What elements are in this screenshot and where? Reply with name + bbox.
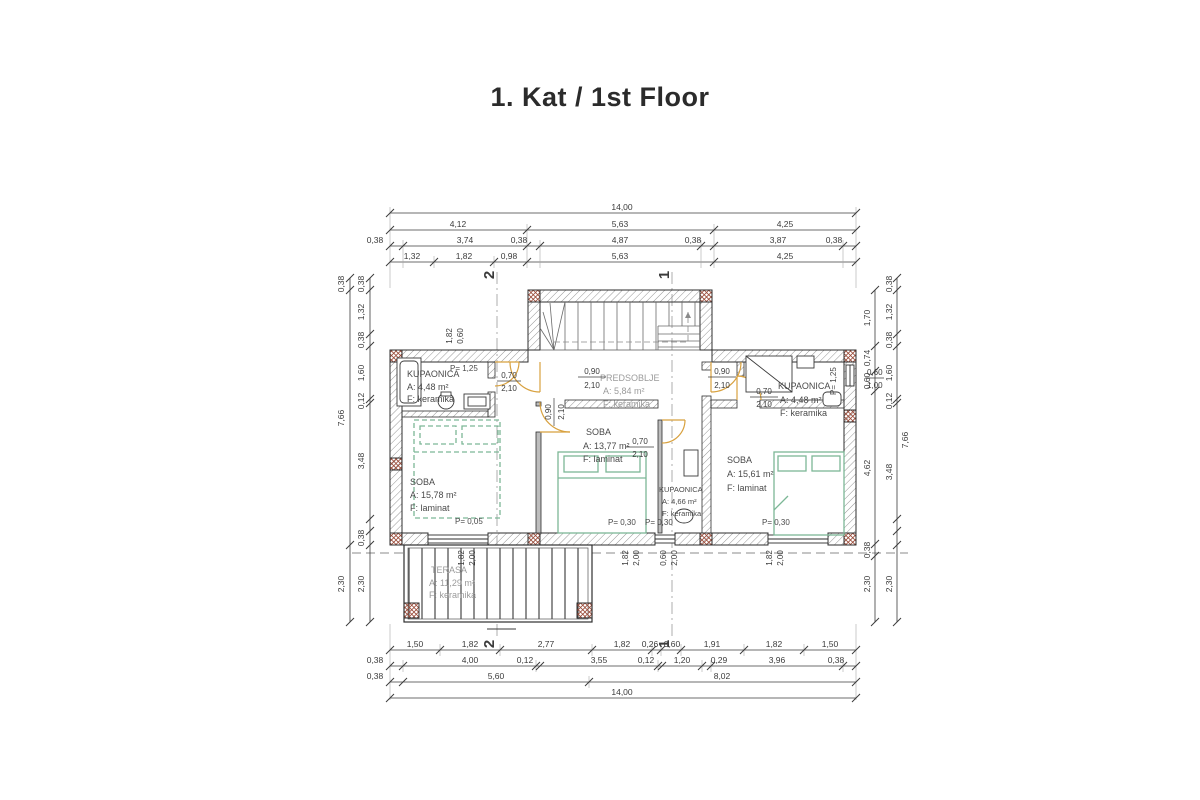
dim-value: 2,77 [538,639,555,649]
dim-value: 5,63 [612,251,629,261]
room-floor: F: keramika [662,509,702,518]
door-height: 2,10 [584,381,600,390]
room-floor: F: laminat [727,483,767,493]
room-area: A: 15,78 m² [410,490,457,500]
dim-value: 0,38 [685,235,702,245]
dim-value: 0,98 [501,251,518,261]
dim-value: 0,38 [862,541,872,558]
dim-value: 0,38 [367,655,384,665]
door-height: 2,10 [557,404,566,420]
dim-value: 4,25 [777,251,794,261]
dim-value: 0,38 [884,275,894,292]
window-height: 2,00 [776,550,785,566]
door-width: 0,90 [544,404,553,420]
dim-value: 3,87 [770,235,787,245]
door-width: 0,70 [501,371,517,380]
window-label-right-soba: 1,82 2,00 [765,550,785,566]
dim-value: 1,32 [884,303,894,320]
room-name: SOBA [410,477,435,487]
room-name: PREDSOBLJE [600,373,660,383]
dim-value: 0,38 [884,331,894,348]
room-floor: F: laminat [410,503,450,513]
dim-value: 0,38 [367,671,384,681]
window-width: 0,60 [659,550,668,566]
dim-value: 8,02 [714,671,731,681]
dim-value: 3,96 [769,655,786,665]
room-area: A: 13,77 m² [583,441,630,451]
dim-value: 1,70 [862,309,872,326]
opening-labels: 0,70 2,10 0,90 2,10 0,90 2,10 0,70 2,10 … [445,328,884,566]
dim-value: 0,38 [367,235,384,245]
room-name: SOBA [727,455,752,465]
dim-value: 0,29 [711,655,728,665]
dim-value: 1,50 [822,639,839,649]
dim-value: 0,12 [884,392,894,409]
door-height: 2,10 [756,400,772,409]
room-name: KUPAONICA [778,381,830,391]
window-width: 1,82 [457,550,466,566]
dim-value: 0,60 [862,372,872,389]
floor-plan-drawing: KUPAONICA A: 4,48 m² F: keramika P= 1,25… [0,0,1200,800]
room-area: A: 4,66 m² [662,497,697,506]
room-name: SOBA [586,427,611,437]
room-p-value: P= 1,25 [450,364,478,373]
witness-lines [390,207,856,700]
dimension-chain-bottom: 1,50 1,82 2,77 1,82 0,26 0,60 1,91 1,82 … [367,639,845,697]
dimension-chain-top: 14,00 4,12 5,63 4,25 0,38 3,74 0,38 4,87… [367,202,843,261]
section-marker-2-bottom: 2 [481,640,498,648]
door-width: 0,70 [632,437,648,446]
dim-value: 14,00 [611,202,633,212]
dimension-chain-right: 1,70 0,74 0,60 4,62 0,38 2,30 0,38 1,32 … [862,275,910,592]
dim-value: 1,60 [356,364,366,381]
toilet-icon-right [797,356,814,368]
room-floor: F: keramika [780,408,827,418]
dim-value: 1,32 [404,251,421,261]
dim-value: 1,91 [704,639,721,649]
dim-value: 3,48 [884,463,894,480]
door-label-predsoblje-right: 0,90 2,10 [708,367,736,390]
window-label-mid-small: 0,60 2,00 [659,550,679,566]
dimension-chain-left: 0,38 7,66 2,30 0,38 1,32 0,38 1,60 0,12 … [336,275,366,592]
dim-value: 0,12 [517,655,534,665]
window-height: 2,00 [632,550,641,566]
dim-value: 1,82 [456,251,473,261]
stairs [540,302,700,350]
dim-value: 7,66 [900,431,910,448]
window-width: 1,82 [621,550,630,566]
dim-value: 1,82 [462,639,479,649]
dim-value: 0,12 [638,655,655,665]
dim-value: 7,66 [336,409,346,426]
dim-value: 1,82 [766,639,783,649]
door-width: 0,90 [584,367,600,376]
section-marker-1-top: 1 [656,271,673,279]
section-marker-1-bottom: 1 [656,640,673,648]
dim-value: 2,30 [356,575,366,592]
terrace-post-right [577,603,592,618]
window-height: 0,60 [456,328,465,344]
dim-value: 14,00 [611,687,633,697]
room-area: A: 15,61 m² [727,469,774,479]
dim-value: 0,74 [862,349,872,366]
dim-value: 4,00 [462,655,479,665]
room-p-value: P= 0,30 [762,518,790,527]
dim-value: 5,63 [612,219,629,229]
door-width: 0,90 [714,367,730,376]
stair-direction-arrow [685,312,691,318]
dim-value: 2,30 [336,575,346,592]
dim-value: 1,20 [674,655,691,665]
page-title: 1. Kat / 1st Floor [0,82,1200,113]
window-label-mid-soba: 1,82 2,00 [621,550,641,566]
dim-value: 3,74 [457,235,474,245]
dim-value: 0,38 [511,235,528,245]
room-floor: F: keramika [407,394,454,404]
room-area: A: 5,84 m² [603,386,645,396]
terrace-post-left [404,603,419,618]
dim-value: 4,25 [777,219,794,229]
sink-basin [468,397,486,406]
dim-value: 1,60 [884,364,894,381]
dim-value: 0,38 [828,655,845,665]
room-area: A: 4,48 m² [780,395,822,405]
room-floor: F: keramika [603,399,650,409]
room-label-soba-mid: SOBA A: 13,77 m² F: laminat P= 0,30 [583,427,636,527]
window-width: 1,82 [445,328,454,344]
room-floor: F: laminat [583,454,623,464]
window-height: 2,00 [670,550,679,566]
dim-value: 2,30 [862,575,872,592]
sink-icon-mid-bath [684,450,698,476]
dim-value: 2,30 [884,575,894,592]
dim-value: 0,38 [336,275,346,292]
door-height: 2,10 [632,450,648,459]
window-width: 1,82 [765,550,774,566]
dim-value: 1,82 [614,639,631,649]
window-height: 2,00 [468,550,477,566]
room-p-value: P= 0,30 [608,518,636,527]
room-label-soba-left: SOBA A: 15,78 m² F: laminat P= 0,05 [410,477,483,526]
dim-value: 4,12 [450,219,467,229]
dim-value: 1,50 [407,639,424,649]
room-area: A: 11,29 m² [429,578,475,588]
door-width: 0,70 [756,387,772,396]
dim-value: 4,62 [862,459,872,476]
dim-value: 4,87 [612,235,629,245]
room-name: KUPAONICA [659,485,703,494]
dim-value: 0,12 [356,392,366,409]
floor-plan-page: 1. Kat / 1st Floor [0,0,1200,800]
dim-value: 1,32 [356,303,366,320]
door-height: 2,10 [714,381,730,390]
dim-value: 0,38 [356,275,366,292]
room-p-value: P= 0,30 [645,518,673,527]
dim-value: 0,38 [826,235,843,245]
room-floor: F: keramika [429,590,476,600]
door-arc-mid-bath [662,420,685,443]
room-label-kupaonica-mid: KUPAONICA A: 4,66 m² F: keramika P= 0,30 [645,485,703,527]
section-marker-2-top: 2 [481,271,498,279]
dim-value: 5,60 [488,671,505,681]
window-label-stair-left: 1,82 0,60 [445,328,465,344]
room-area: A: 4,48 m² [407,382,449,392]
dim-value: 3,48 [356,452,366,469]
room-p-value: P= 0,05 [455,517,483,526]
door-height: 2,10 [501,384,517,393]
dim-value: 0,38 [356,331,366,348]
dim-value: 3,55 [591,655,608,665]
room-label-soba-right: SOBA A: 15,61 m² F: laminat P= 0,30 [727,455,790,527]
dim-value: 0,38 [356,529,366,546]
room-p-value: P= 1,25 [829,367,838,395]
